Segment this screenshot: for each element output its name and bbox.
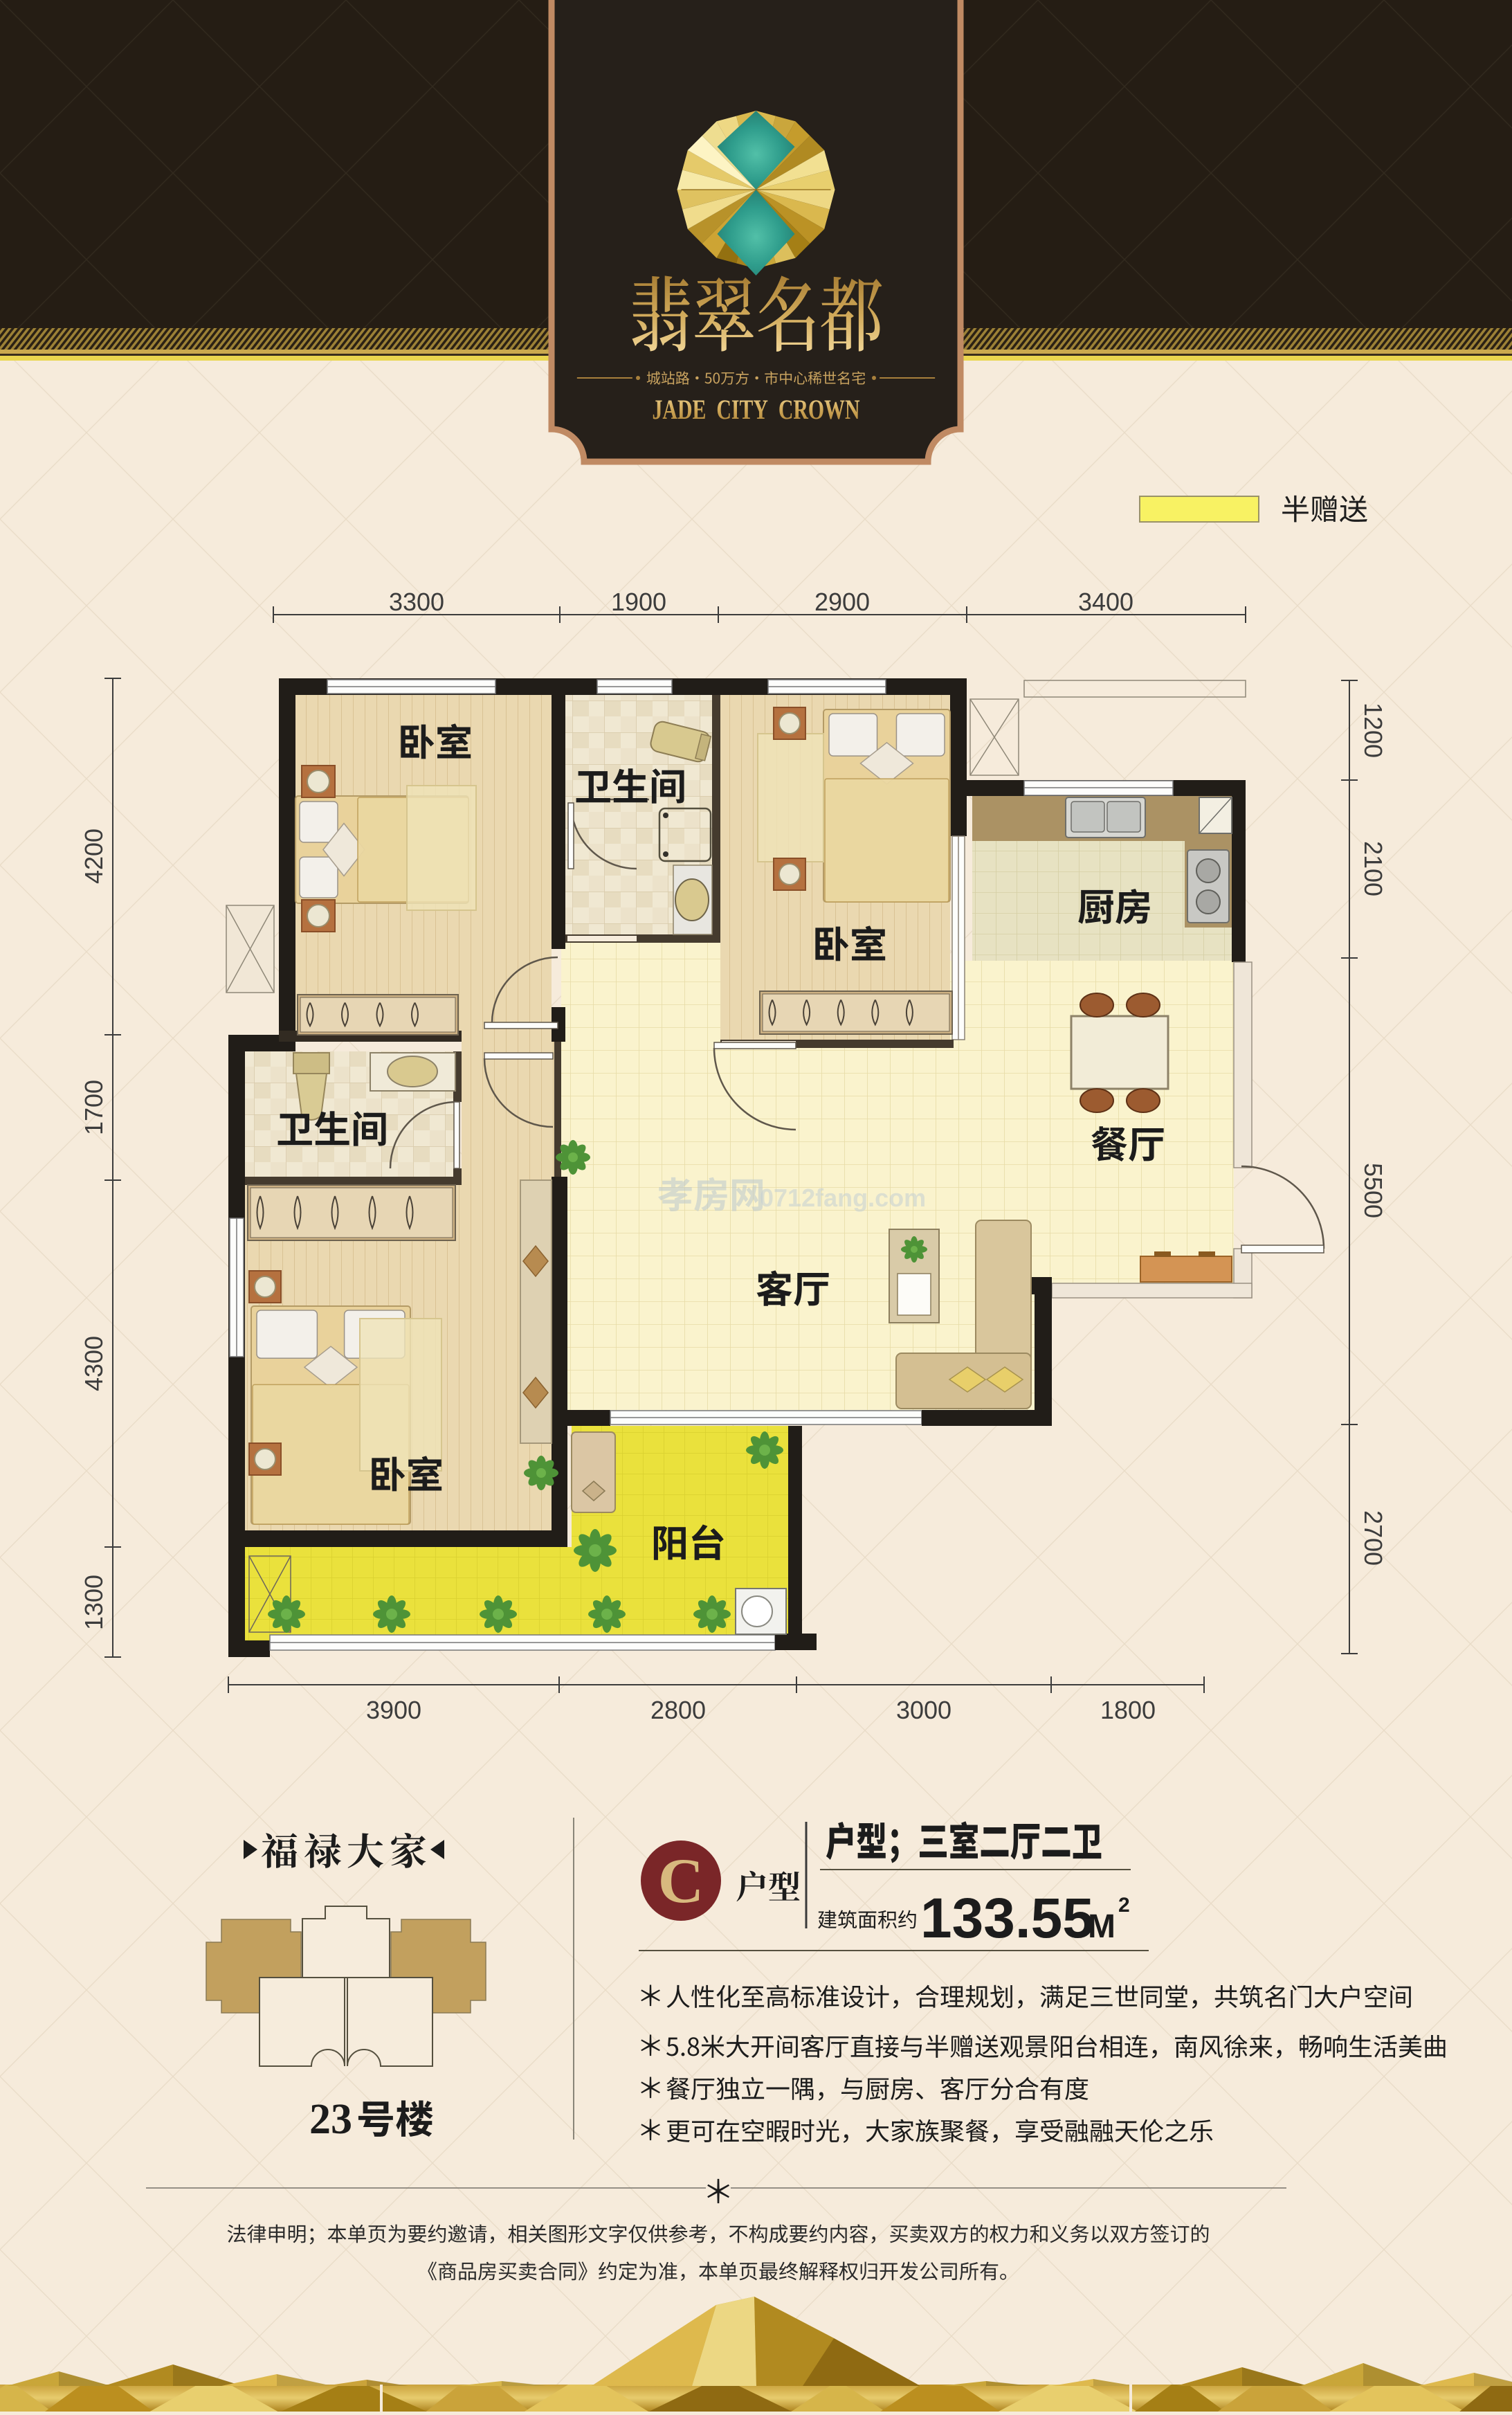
svg-text:2100: 2100	[1359, 841, 1387, 896]
svg-text:0712fang.com: 0712fang.com	[760, 1184, 926, 1212]
svg-text:2700: 2700	[1359, 1510, 1387, 1566]
svg-text:133.55: 133.55	[920, 1887, 1094, 1950]
svg-text:4300: 4300	[80, 1336, 108, 1391]
svg-text:1200: 1200	[1359, 703, 1387, 758]
svg-text:C: C	[658, 1845, 704, 1916]
svg-text:4200: 4200	[80, 829, 108, 884]
svg-text:3000: 3000	[896, 1696, 951, 1724]
svg-text:3300: 3300	[389, 588, 444, 616]
svg-text:1800: 1800	[1100, 1696, 1156, 1724]
svg-text:3900: 3900	[366, 1696, 421, 1724]
svg-text:5500: 5500	[1359, 1163, 1387, 1218]
svg-text:3400: 3400	[1078, 588, 1133, 616]
svg-text:2: 2	[1118, 1894, 1130, 1917]
svg-text:JADE CITY CROWN: JADE CITY CROWN	[653, 394, 860, 425]
svg-text:1700: 1700	[80, 1080, 108, 1135]
svg-text:1300: 1300	[80, 1575, 108, 1630]
svg-text:2800: 2800	[650, 1696, 706, 1724]
svg-text:23: 23	[309, 2096, 352, 2143]
svg-text:2900: 2900	[814, 588, 870, 616]
svg-text:M: M	[1088, 1908, 1115, 1945]
svg-text:1900: 1900	[611, 588, 666, 616]
